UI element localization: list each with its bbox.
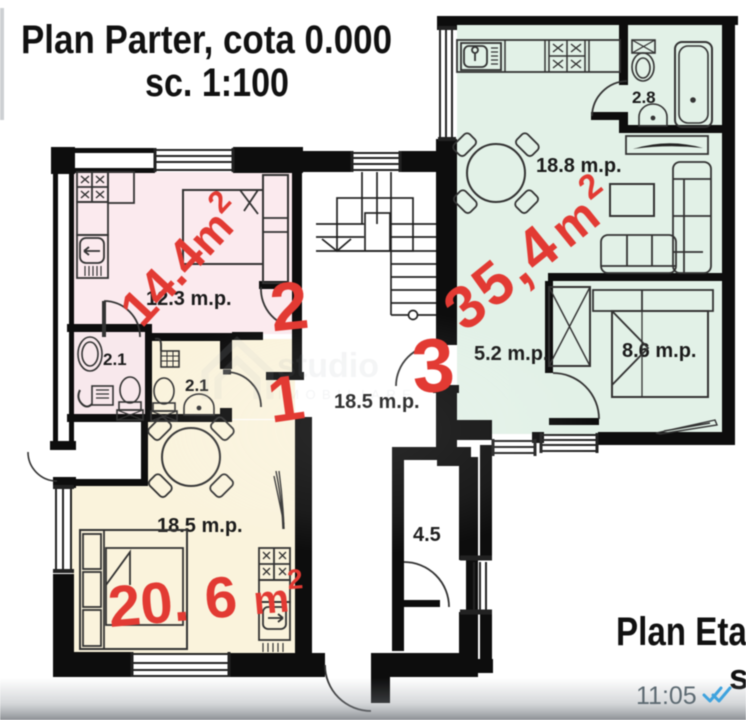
svg-text:8.6 m.p.: 8.6 m.p. xyxy=(622,340,696,362)
svg-text:3: 3 xyxy=(409,322,457,410)
svg-text:sc. 1:100: sc. 1:100 xyxy=(145,61,289,105)
svg-text:11:05: 11:05 xyxy=(636,682,697,710)
svg-text:Plan Etaj: Plan Etaj xyxy=(616,610,746,654)
svg-text:Plan Parter, cota 0.000: Plan Parter, cota 0.000 xyxy=(21,18,392,62)
svg-text:2.1: 2.1 xyxy=(103,350,127,369)
svg-text:2: 2 xyxy=(266,267,312,347)
